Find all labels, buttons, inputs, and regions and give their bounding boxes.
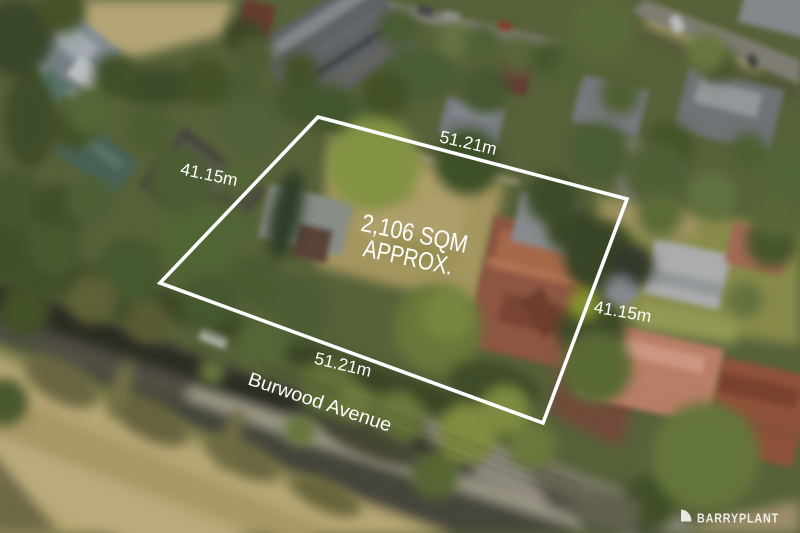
svg-text:BARRYPLANT: BARRYPLANT xyxy=(697,511,779,526)
